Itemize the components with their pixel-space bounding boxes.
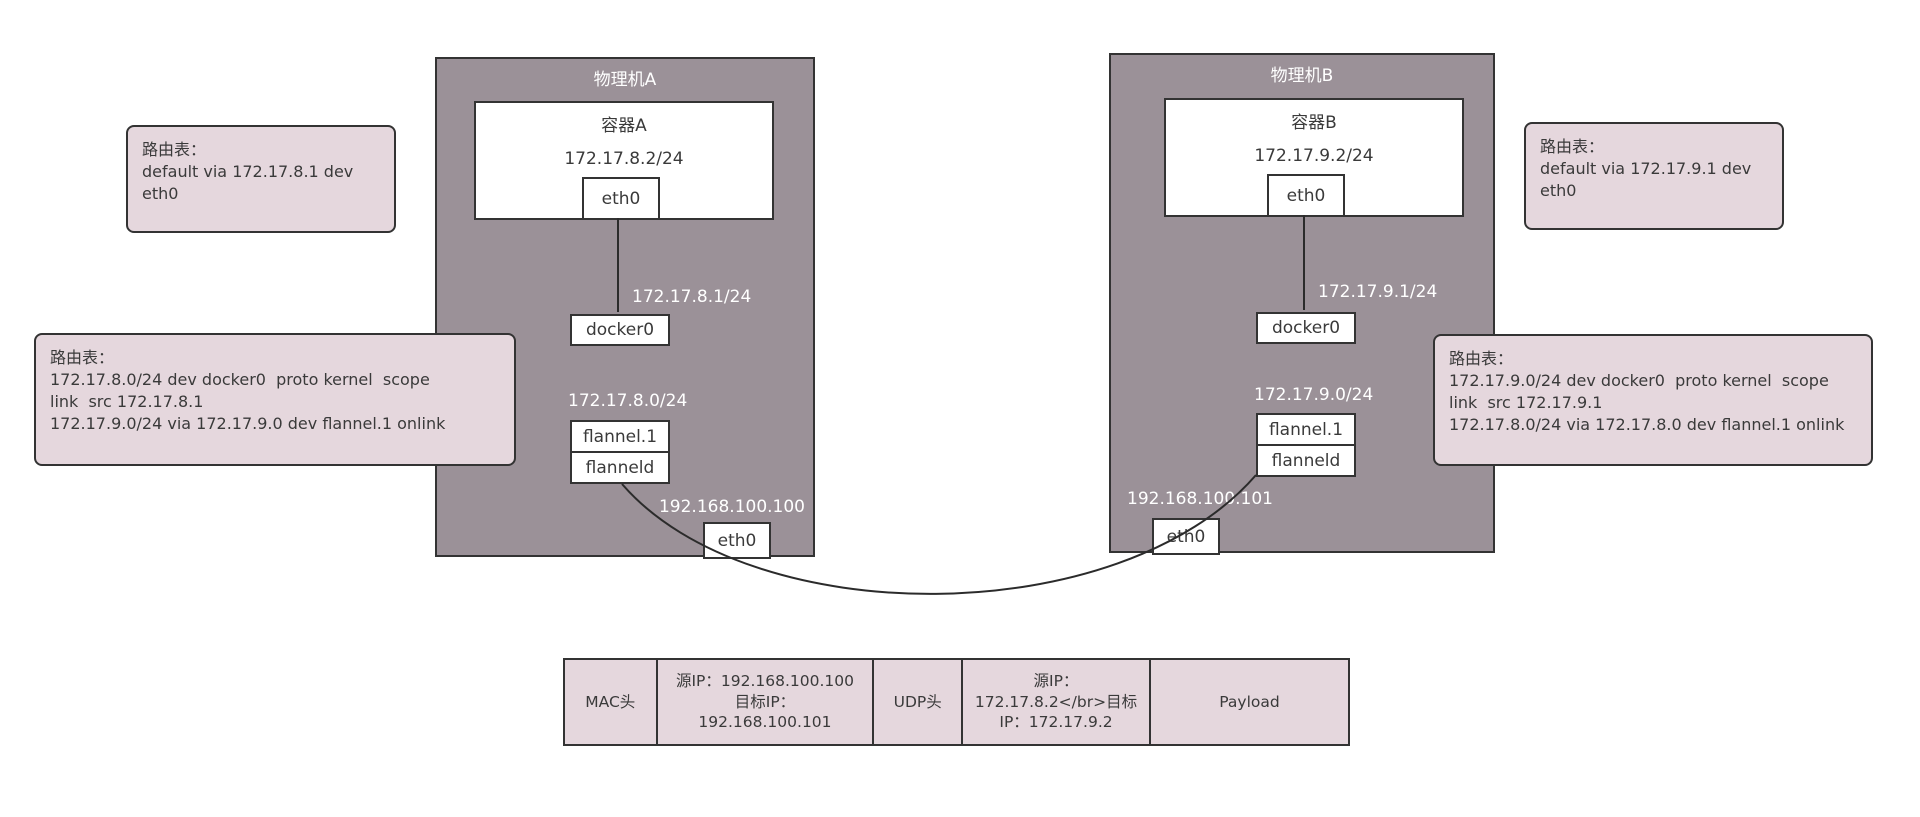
host-a-eth0-box: eth0: [703, 522, 771, 559]
packet-cell-outer-ip: 源IP：192.168.100.100 目标IP： 192.168.100.10…: [656, 660, 873, 744]
packet-cell-mac-header: MAC头: [565, 660, 656, 744]
container-a-ip: 172.17.8.2/24: [476, 149, 772, 169]
route-table-a-host: 路由表： 172.17.8.0/24 dev docker0 proto ker…: [34, 333, 516, 466]
docker0-a-box: docker0: [570, 314, 670, 346]
flannel-b-subnet-label: 172.17.9.0/24: [1254, 385, 1373, 405]
route-table-a-container: 路由表： default via 172.17.8.1 dev eth0: [126, 125, 396, 233]
flannel-network-diagram: 物理机A 容器A 172.17.8.2/24 eth0 172.17.8.1/2…: [0, 0, 1920, 817]
container-a-box: 容器A 172.17.8.2/24 eth0: [474, 101, 774, 220]
flanneld-b-box: flanneld: [1258, 444, 1354, 475]
host-b-ip-label: 192.168.100.101: [1127, 489, 1273, 509]
packet-cell-payload: Payload: [1149, 660, 1348, 744]
packet-cell-inner-ip: 源IP： 172.17.8.2</br>目标 IP：172.17.9.2: [961, 660, 1149, 744]
docker0-b-box: docker0: [1256, 312, 1356, 344]
packet-cell-udp-header: UDP头: [872, 660, 961, 744]
flannel-a-subnet-label: 172.17.8.0/24: [568, 391, 687, 411]
machine-a-box: 物理机A 容器A 172.17.8.2/24 eth0 172.17.8.1/2…: [435, 57, 815, 557]
flanneld-a-box: flanneld: [572, 451, 668, 482]
flannel1-b-box: flannel.1: [1258, 415, 1354, 444]
flannel-b-stack: flannel.1 flanneld: [1256, 413, 1356, 477]
container-b-eth0-box: eth0: [1267, 174, 1345, 217]
route-table-b-host: 路由表： 172.17.9.0/24 dev docker0 proto ker…: [1433, 334, 1873, 466]
host-b-eth0-box: eth0: [1152, 518, 1220, 555]
container-b-ip: 172.17.9.2/24: [1166, 146, 1462, 166]
container-a-title: 容器A: [476, 111, 772, 136]
host-a-ip-label: 192.168.100.100: [659, 497, 805, 517]
route-table-b-container: 路由表： default via 172.17.9.1 dev eth0: [1524, 122, 1784, 230]
container-b-title: 容器B: [1166, 108, 1462, 133]
flannel-a-stack: flannel.1 flanneld: [570, 420, 670, 484]
container-b-box: 容器B 172.17.9.2/24 eth0: [1164, 98, 1464, 217]
machine-b-title: 物理机B: [1111, 61, 1493, 86]
flannel1-a-box: flannel.1: [572, 422, 668, 451]
container-a-eth0-box: eth0: [582, 177, 660, 220]
docker0-a-ip-label: 172.17.8.1/24: [632, 287, 751, 307]
machine-b-box: 物理机B 容器B 172.17.9.2/24 eth0 172.17.9.1/2…: [1109, 53, 1495, 553]
machine-a-title: 物理机A: [437, 65, 813, 90]
docker0-b-ip-label: 172.17.9.1/24: [1318, 282, 1437, 302]
packet-table: MAC头 源IP：192.168.100.100 目标IP： 192.168.1…: [563, 658, 1350, 746]
